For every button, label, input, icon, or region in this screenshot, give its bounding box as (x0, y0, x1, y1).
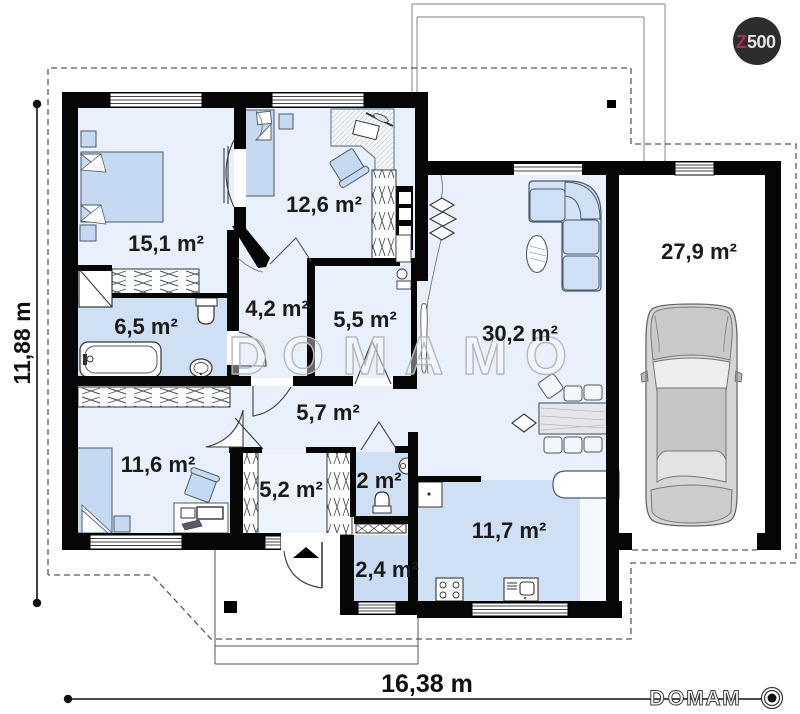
svg-text:O: O (668, 687, 684, 710)
svg-text:30,2 m²: 30,2 m² (482, 321, 558, 346)
svg-text:27,9 m²: 27,9 m² (661, 239, 737, 264)
svg-text:M: M (343, 326, 388, 386)
svg-text:O: O (282, 326, 324, 386)
svg-text:11,88 m: 11,88 m (9, 301, 35, 384)
svg-text:11,7 m²: 11,7 m² (472, 518, 547, 543)
svg-text:11,6 m²: 11,6 m² (121, 452, 196, 477)
svg-text:500: 500 (747, 32, 776, 52)
svg-text:15,1 m²: 15,1 m² (128, 231, 204, 256)
svg-text:16,38 m: 16,38 m (381, 670, 473, 698)
svg-text:A: A (705, 687, 720, 710)
svg-text:4,2 m²: 4,2 m² (245, 296, 309, 321)
svg-text:M: M (686, 687, 704, 710)
svg-text:A: A (405, 326, 444, 386)
svg-text:5,7 m²: 5,7 m² (296, 400, 360, 425)
svg-text:12,6 m²: 12,6 m² (286, 192, 362, 217)
svg-text:5,5 m²: 5,5 m² (333, 307, 397, 332)
svg-text:6,5 m²: 6,5 m² (114, 314, 178, 339)
svg-text:2 m²: 2 m² (356, 468, 401, 493)
svg-text:Z: Z (736, 32, 747, 52)
svg-text:D: D (229, 326, 268, 386)
svg-text:5,2 m²: 5,2 m² (259, 477, 323, 502)
svg-text:D: D (649, 687, 664, 710)
svg-text:2,4 m²: 2,4 m² (355, 557, 419, 582)
svg-text:M: M (722, 687, 740, 710)
